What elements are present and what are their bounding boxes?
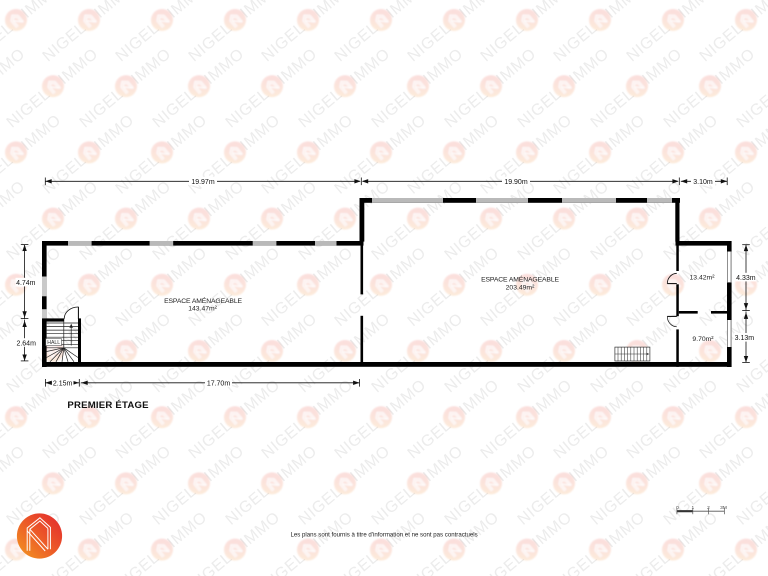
svg-text:4.74m: 4.74m [16,280,36,287]
svg-text:2.64m: 2.64m [16,341,36,348]
svg-text:ESPACE AMÉNAGEABLE: ESPACE AMÉNAGEABLE [481,275,559,284]
svg-text:3.10m: 3.10m [693,179,713,186]
svg-text:17.70m: 17.70m [207,381,231,388]
svg-text:4.33m: 4.33m [736,275,756,282]
svg-text:HALL: HALL [47,340,60,346]
svg-text:2.15m: 2.15m [53,381,73,388]
svg-text:ESPACE AMÉNAGEABLE: ESPACE AMÉNAGEABLE [164,296,242,305]
svg-text:Les plans sont fournis à titre: Les plans sont fournis à titre d'informa… [291,531,478,538]
svg-text:19.97m: 19.97m [191,179,215,186]
svg-text:1: 1 [691,505,694,511]
svg-text:9.70m²: 9.70m² [692,336,714,343]
svg-text:19.90m: 19.90m [504,179,528,186]
svg-text:0: 0 [676,505,679,511]
svg-text:3.13m: 3.13m [735,335,755,342]
svg-text:3M: 3M [720,505,727,511]
svg-text:203.49m²: 203.49m² [506,284,535,291]
svg-text:143.47m²: 143.47m² [188,305,217,312]
svg-text:13.42m²: 13.42m² [690,274,716,281]
svg-text:PREMIER ÉTAGE: PREMIER ÉTAGE [67,399,149,411]
svg-text:2: 2 [707,505,710,511]
